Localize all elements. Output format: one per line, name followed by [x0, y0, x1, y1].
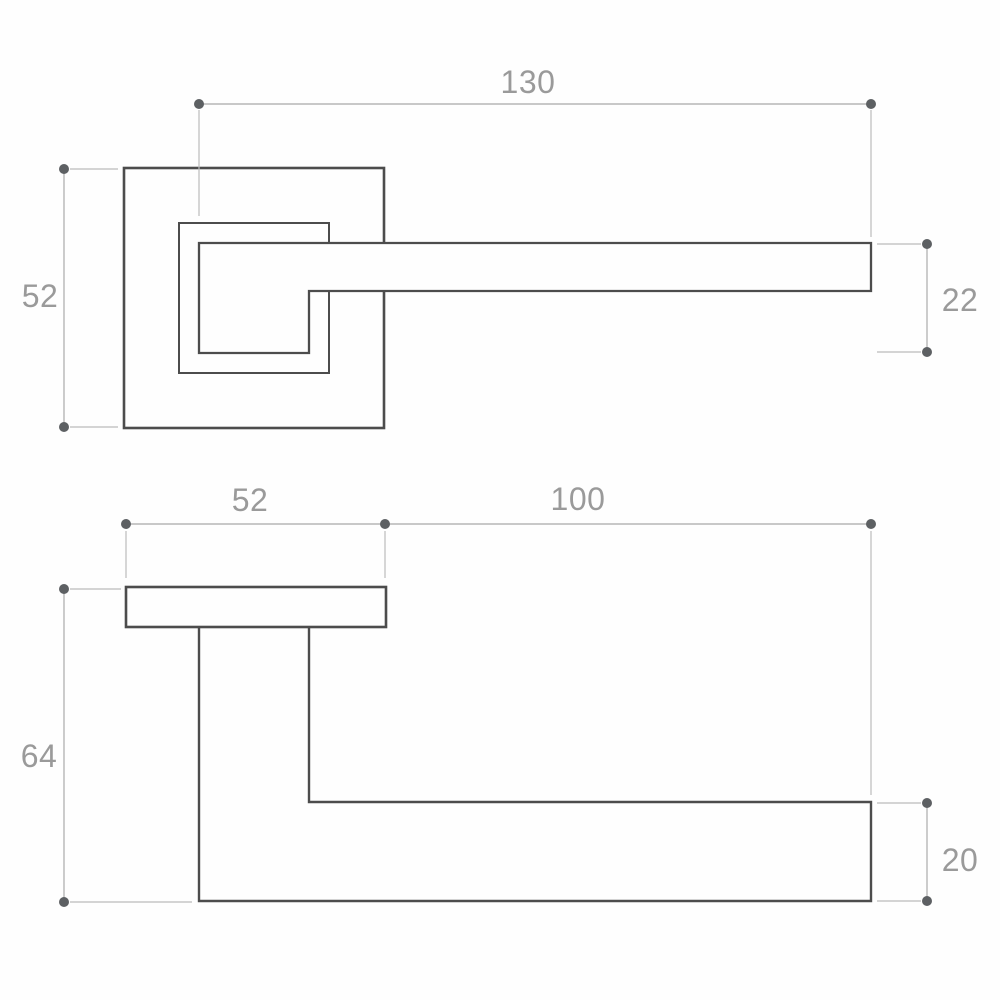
technical-drawing: 130 52 22	[0, 0, 1000, 1000]
dimension-endpoint-dot	[59, 584, 69, 594]
dimension-endpoint-dot	[866, 519, 876, 529]
dimension-endpoint-dot	[866, 99, 876, 109]
dimension-endpoint-dot	[922, 239, 932, 249]
dimension-endpoint-dot	[194, 99, 204, 109]
dimension-label-lever-height: 22	[942, 282, 979, 318]
dimension-label-total-depth: 64	[21, 738, 58, 774]
dimension-endpoint-dot	[922, 896, 932, 906]
dimension-endpoint-dot	[380, 519, 390, 529]
drawing-background	[0, 0, 1000, 1000]
dimension-endpoint-dot	[59, 164, 69, 174]
dimension-label-lever-thickness: 20	[942, 842, 979, 878]
dimension-endpoint-dot	[922, 347, 932, 357]
dimension-endpoint-dot	[59, 897, 69, 907]
dimension-label-rose-size: 52	[22, 278, 59, 314]
dimension-endpoint-dot	[121, 519, 131, 529]
dimension-label-projection: 100	[551, 481, 606, 517]
drawing-svg: 130 52 22	[0, 0, 1000, 1000]
dimension-label-rose-width: 52	[232, 482, 269, 518]
dimension-endpoint-dot	[922, 798, 932, 808]
dimension-label-lever-length: 130	[501, 64, 556, 100]
dimension-endpoint-dot	[59, 422, 69, 432]
